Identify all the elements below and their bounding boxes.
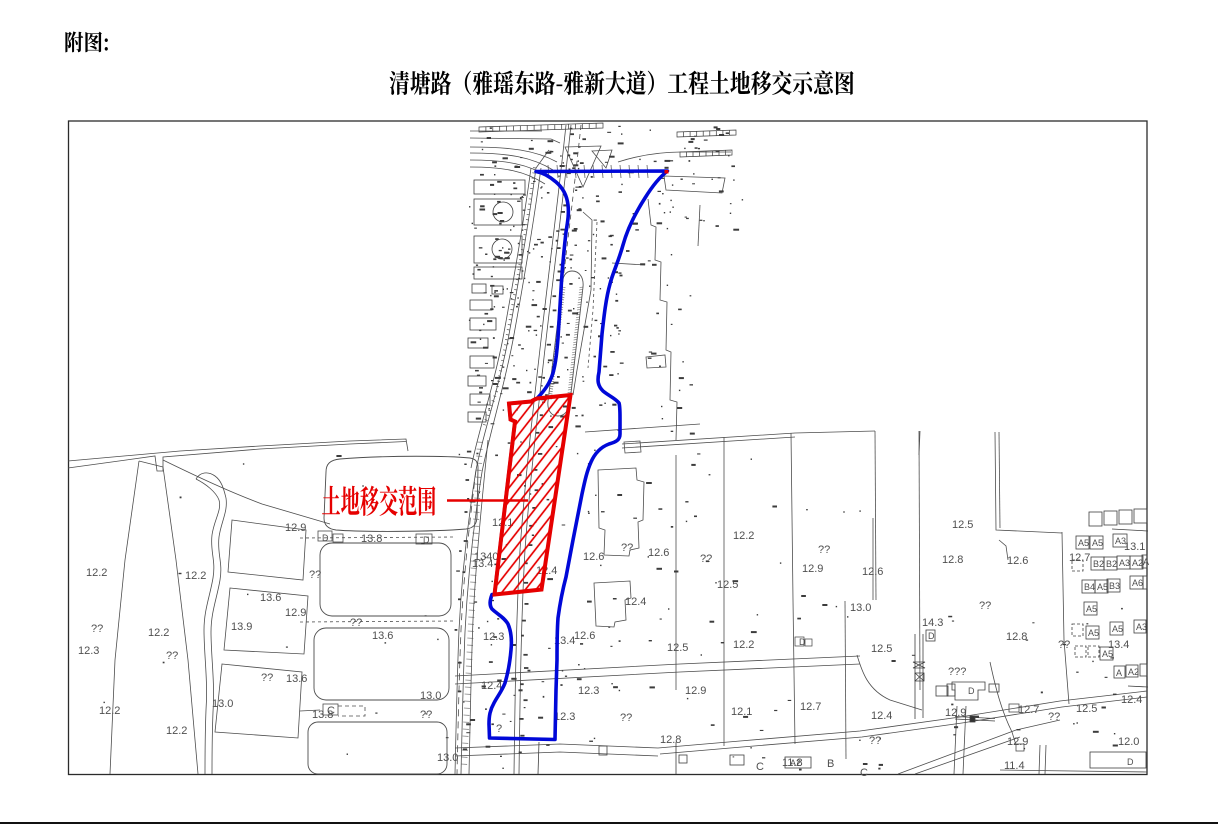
svg-text:D: D (322, 533, 329, 543)
svg-text:C: C (327, 705, 335, 717)
svg-text:??: ?? (620, 712, 632, 724)
svg-text:12.9: 12.9 (1007, 736, 1028, 748)
svg-text:13.4: 13.4 (472, 558, 493, 570)
svg-text:12.4: 12.4 (625, 596, 646, 608)
svg-text:B4: B4 (1084, 582, 1095, 592)
svg-text:13.6: 13.6 (260, 592, 281, 604)
svg-text:B3: B3 (1109, 581, 1120, 591)
svg-text:12.1: 12.1 (731, 706, 752, 718)
svg-text:12.5: 12.5 (871, 643, 892, 655)
svg-text:A5: A5 (1092, 538, 1103, 548)
svg-text:B2: B2 (1106, 559, 1117, 569)
svg-text:A5: A5 (1097, 582, 1108, 592)
svg-text:12.8: 12.8 (1006, 631, 1027, 643)
svg-text:12.5: 12.5 (667, 642, 688, 654)
svg-text:D: D (1127, 757, 1134, 767)
svg-text:12.3: 12.3 (78, 645, 99, 657)
svg-text:14.3: 14.3 (922, 617, 943, 629)
svg-text:12.5: 12.5 (952, 519, 973, 531)
svg-text:C: C (860, 767, 868, 779)
svg-text:12.6: 12.6 (862, 566, 883, 578)
svg-text:??: ?? (979, 600, 991, 612)
svg-text:A2: A2 (1128, 667, 1139, 677)
svg-text:12.7: 12.7 (800, 701, 821, 713)
svg-text:13.9: 13.9 (231, 621, 252, 633)
svg-text:13.0: 13.0 (437, 752, 458, 764)
svg-text:12.9: 12.9 (285, 522, 306, 534)
svg-text:A5: A5 (1078, 538, 1089, 548)
svg-text:12.6: 12.6 (1007, 555, 1028, 567)
svg-text:13.6: 13.6 (372, 630, 393, 642)
svg-text:B2: B2 (1093, 559, 1104, 569)
svg-text:13.6: 13.6 (286, 673, 307, 685)
svg-text:12.4: 12.4 (1121, 694, 1142, 706)
svg-text:12.2: 12.2 (185, 570, 206, 582)
svg-text:12.2: 12.2 (99, 705, 120, 717)
svg-text:12.2: 12.2 (733, 530, 754, 542)
svg-text:??: ?? (261, 672, 273, 684)
svg-text:A: A (1143, 557, 1149, 567)
svg-text:12.5: 12.5 (1076, 703, 1097, 715)
svg-text:A5: A5 (1086, 604, 1097, 614)
svg-text:A5: A5 (1112, 624, 1123, 634)
svg-text:?: ? (496, 723, 502, 735)
svg-text:12.8: 12.8 (660, 734, 681, 746)
svg-text:??: ?? (309, 569, 321, 581)
svg-text:??: ?? (350, 617, 362, 629)
svg-text:??: ?? (1048, 711, 1060, 723)
svg-text:12.2: 12.2 (86, 567, 107, 579)
svg-text:A2: A2 (1132, 558, 1143, 568)
svg-text:12.4: 12.4 (871, 710, 892, 722)
svg-text:B: B (827, 758, 834, 770)
svg-text:12.2: 12.2 (148, 627, 169, 639)
svg-text:A3: A3 (1136, 622, 1147, 632)
svg-text:A3: A3 (1115, 536, 1126, 546)
svg-text:???: ??? (948, 666, 966, 678)
svg-text:12.9: 12.9 (285, 607, 306, 619)
svg-text:D: D (968, 686, 975, 696)
svg-text:12.7: 12.7 (1069, 552, 1090, 564)
svg-text:13.1: 13.1 (1124, 541, 1145, 553)
svg-text:12.2: 12.2 (166, 725, 187, 737)
svg-text:13.0: 13.0 (212, 698, 233, 710)
svg-text:??: ?? (621, 542, 633, 554)
svg-text:??: ?? (700, 553, 712, 565)
svg-text:12.6: 12.6 (574, 630, 595, 642)
svg-text:12.3: 12.3 (578, 685, 599, 697)
svg-text:12.0: 12.0 (1118, 736, 1139, 748)
svg-text:12.6: 12.6 (583, 551, 604, 563)
svg-text:12.8: 12.8 (942, 554, 963, 566)
svg-text:??: ?? (91, 623, 103, 635)
svg-text:12.2: 12.2 (733, 639, 754, 651)
svg-text:13.0: 13.0 (850, 602, 871, 614)
svg-text:12.9: 12.9 (685, 685, 706, 697)
svg-text:A2: A2 (790, 758, 801, 768)
svg-text:A6: A6 (1132, 578, 1143, 588)
svg-text:12.9: 12.9 (802, 563, 823, 575)
svg-text:??: ?? (818, 544, 830, 556)
svg-text:D: D (928, 631, 935, 641)
svg-text:C: C (756, 761, 764, 773)
svg-text:A3: A3 (1119, 558, 1130, 568)
svg-text:11.4: 11.4 (1004, 760, 1025, 772)
svg-text:A5: A5 (1088, 628, 1099, 638)
svg-text:A: A (1116, 668, 1122, 678)
svg-text:??: ?? (869, 735, 881, 747)
svg-text:13.8: 13.8 (361, 533, 382, 545)
svg-text:13.0: 13.0 (420, 690, 441, 702)
svg-text:12.7: 12.7 (1018, 704, 1039, 716)
svg-text:??: ?? (166, 650, 178, 662)
svg-text:12.9: 12.9 (945, 707, 966, 719)
svg-text:??: ?? (420, 709, 432, 721)
svg-text:12.6: 12.6 (648, 547, 669, 559)
